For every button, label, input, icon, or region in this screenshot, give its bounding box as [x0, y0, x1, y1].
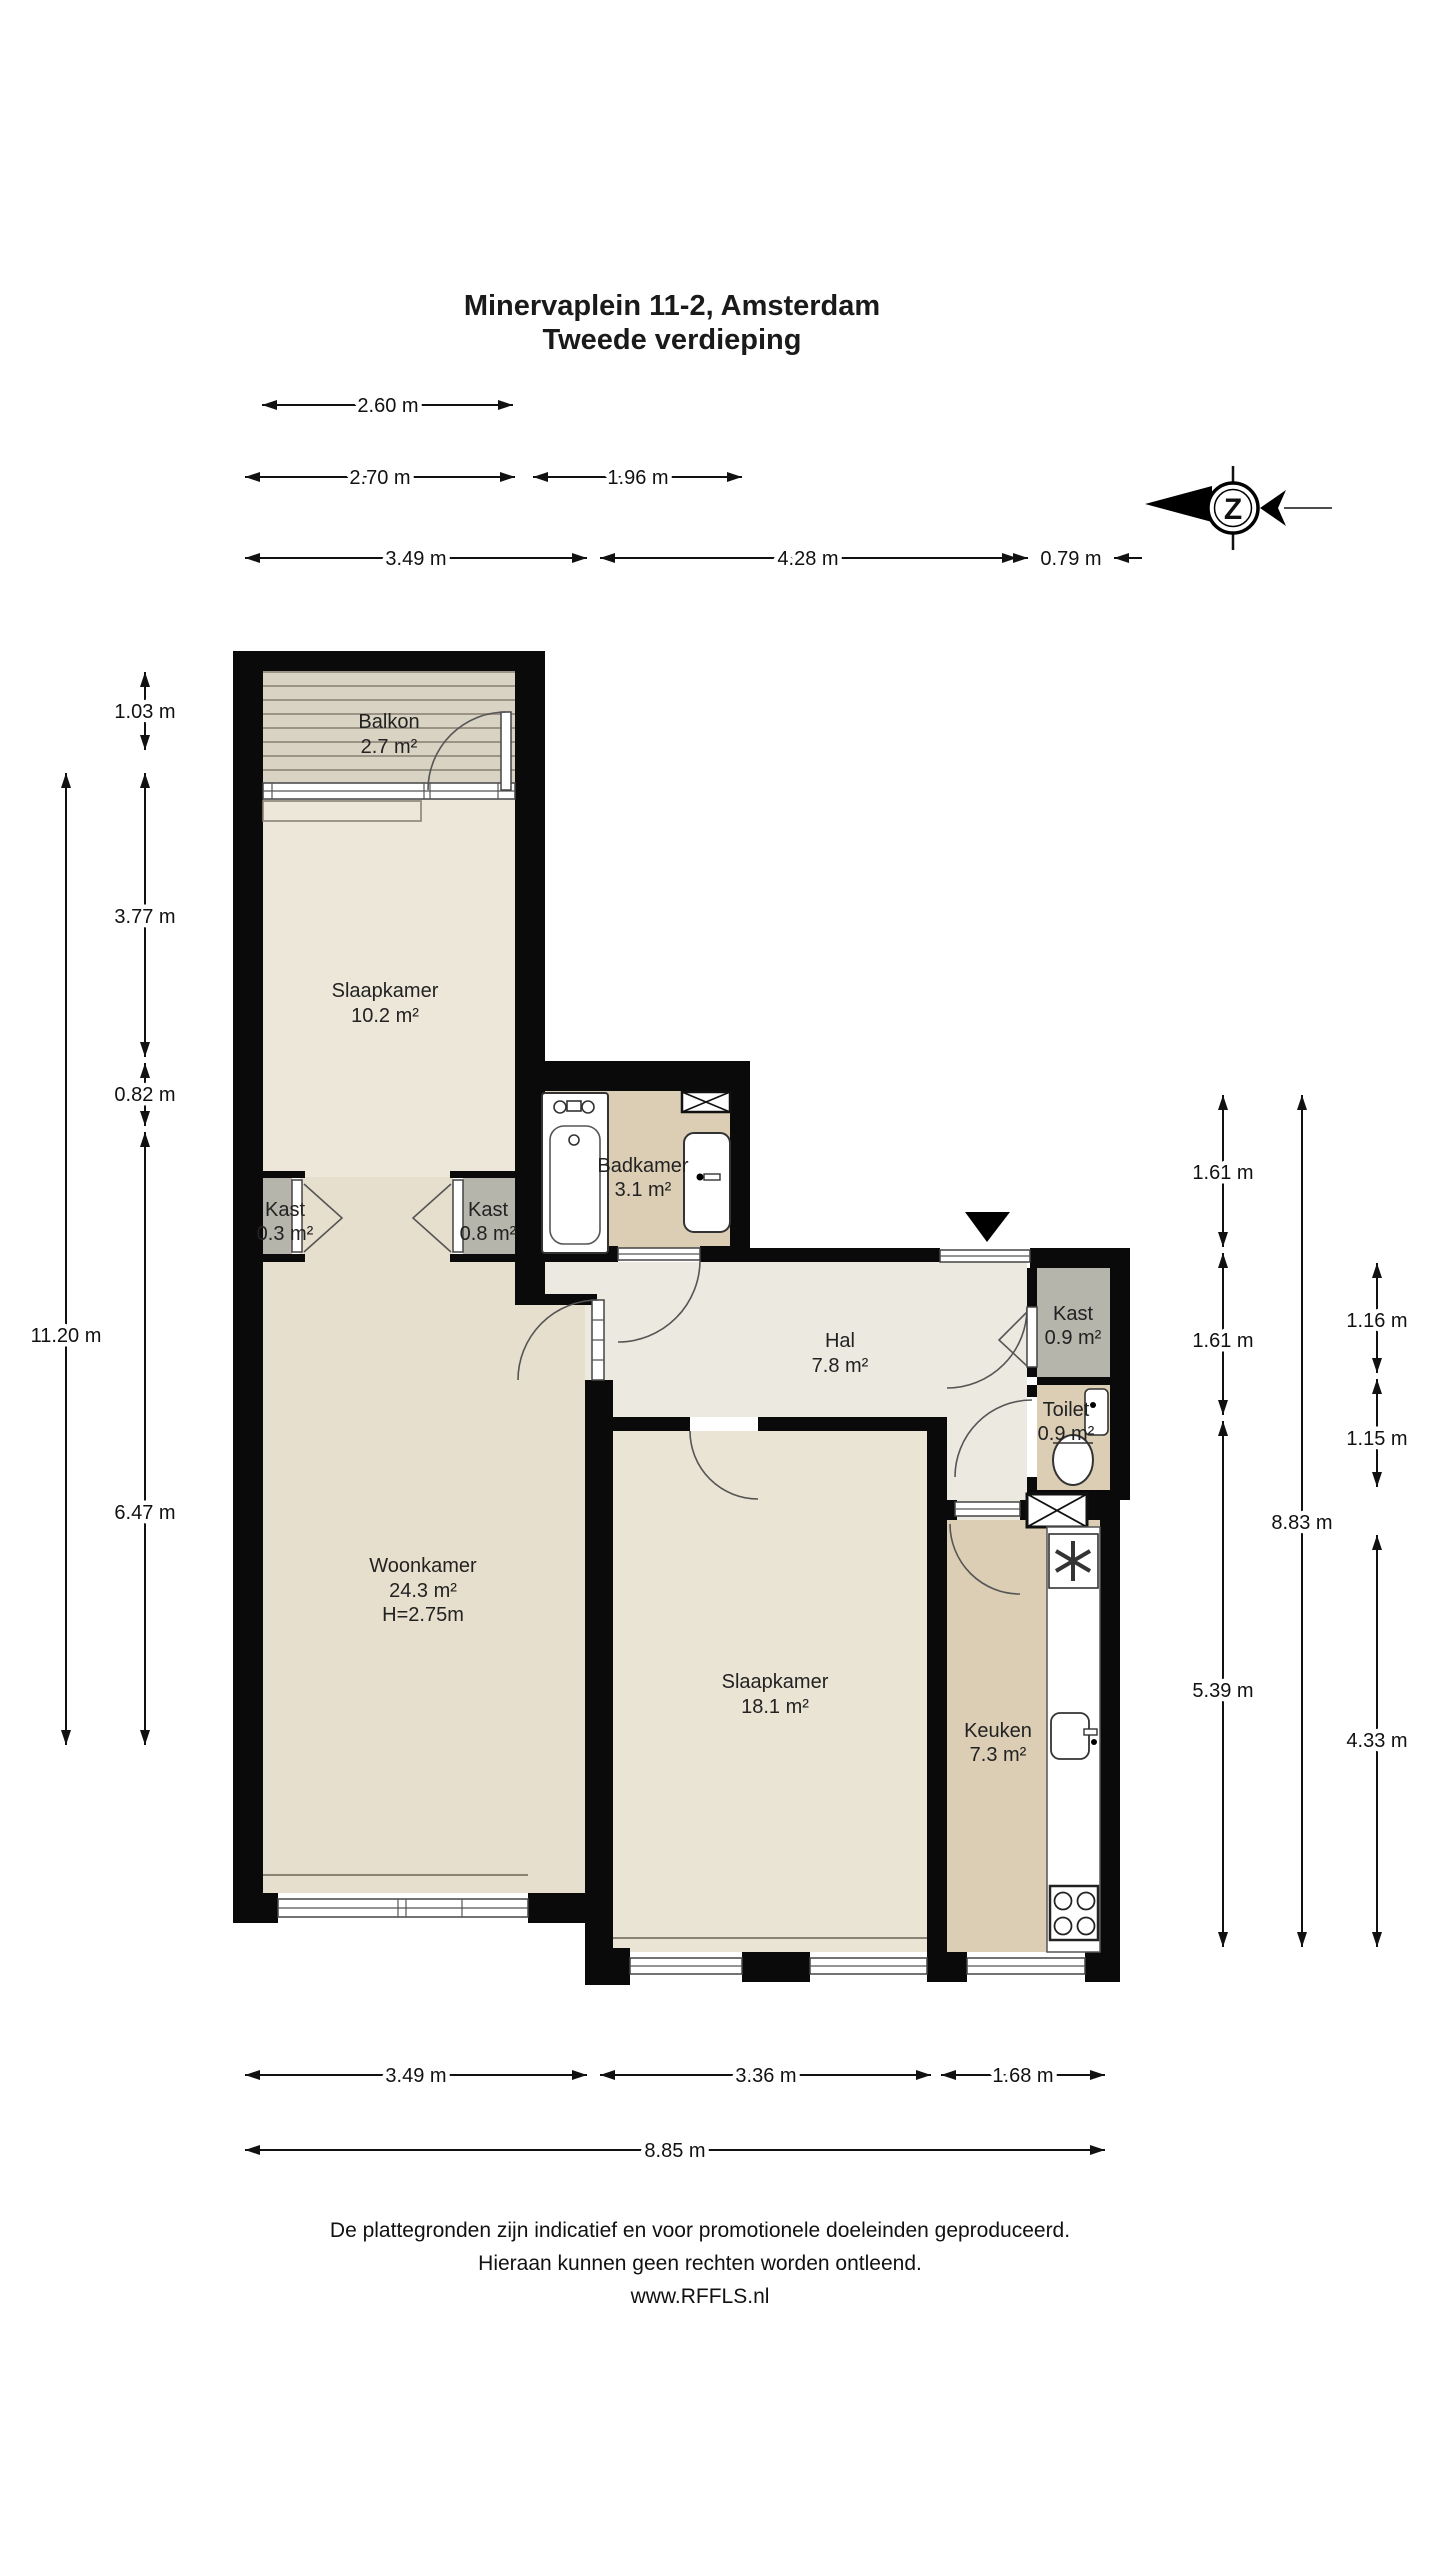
dim-bottom-keuken: 1.68 m: [992, 2065, 1053, 2087]
keuken-sink-tap: [1084, 1729, 1097, 1735]
toilet-label: Toilet: [1043, 1399, 1090, 1421]
slaapkamer1-area: 10.2 m²: [351, 1005, 419, 1027]
dim-kast3-height: 1.16 m: [1346, 1310, 1407, 1332]
dim-balkon-width: 2.60 m: [357, 395, 418, 417]
footer-line2: Hieraan kunnen geen rechten worden ontle…: [478, 2252, 922, 2275]
badkamer-area: 3.1 m²: [615, 1179, 672, 1201]
dim-hal-height: 1.61 m: [1192, 1330, 1253, 1352]
hal-area: 7.8 m²: [812, 1355, 869, 1377]
dim-slaapkamer2-height: 5.39 m: [1192, 1680, 1253, 1702]
slaapkamer2-area: 18.1 m²: [741, 1696, 809, 1718]
hal-label: Hal: [825, 1330, 855, 1352]
dim-woonkamer-depth: 6.47 m: [114, 1502, 175, 1524]
footer-disclaimer: De plattegronden zijn indicatief en voor…: [330, 2219, 1070, 2308]
dim-right-total: 8.83 m: [1271, 1512, 1332, 1534]
floorplan-canvas: Minervaplein 11-2, Amsterdam Tweede verd…: [0, 0, 1440, 2560]
woonkamer-ceiling-height: H=2.75m: [382, 1604, 464, 1626]
title-line1: Minervaplein 11-2, Amsterdam: [464, 290, 880, 322]
title-line2: Tweede verdieping: [543, 324, 802, 356]
dimensions-right: 1.61 m 1.61 m 5.39 m 8.83 m 1.16 m 1.15 …: [1192, 1095, 1407, 1947]
dimensions-left: 1.03 m 3.77 m 0.82 m 6.47 m 11.20 m: [31, 672, 176, 1745]
dim-left-total: 11.20 m: [31, 1325, 102, 1347]
dim-badkamer-height: 1.61 m: [1192, 1162, 1253, 1184]
toilet-area: 0.9 m²: [1038, 1423, 1095, 1445]
dim-slaapkamer1-width: 2.70 m: [349, 467, 410, 489]
washbasin-tap: [704, 1174, 720, 1180]
dim-balkon-depth: 1.03 m: [114, 701, 175, 723]
toilet-cistern-button: [1090, 1402, 1096, 1408]
keuken-label: Keuken: [964, 1720, 1032, 1742]
compass-north-indicator: Z: [1145, 466, 1332, 550]
dimensions-top: 2.60 m 2.70 m 1.96 m 3.49 m 4.28 m 0.79 …: [245, 395, 1142, 570]
kast2-label: Kast: [468, 1199, 508, 1221]
entrance-arrow-icon: [965, 1212, 1010, 1242]
badkamer-washbasin: [684, 1133, 730, 1232]
page-title: Minervaplein 11-2, Amsterdam Tweede verd…: [464, 290, 880, 356]
slaapkamer2-label: Slaapkamer: [722, 1671, 829, 1693]
footer-website: www.RFFLS.nl: [630, 2285, 770, 2308]
dimensions-bottom: 3.49 m 3.36 m 1.68 m 8.85 m: [245, 2065, 1105, 2162]
passage-floor: [300, 1177, 453, 1265]
kast3-label: Kast: [1053, 1303, 1093, 1325]
dim-bottom-woonkamer: 3.49 m: [385, 2065, 446, 2087]
kast2-area: 0.8 m²: [460, 1223, 517, 1245]
keuken-sink-tap-dot: [1091, 1739, 1097, 1745]
woonkamer-label: Woonkamer: [369, 1555, 477, 1577]
hal-floor: [545, 1262, 1027, 1417]
dim-bottom-total: 8.85 m: [644, 2140, 705, 2162]
compass-letter: Z: [1224, 493, 1242, 526]
dim-toilet-height: 1.15 m: [1346, 1428, 1407, 1450]
keuken-area: 7.3 m²: [970, 1744, 1027, 1766]
keuken-sink: [1051, 1713, 1089, 1759]
kast3-area: 0.9 m²: [1045, 1327, 1102, 1349]
washbasin-tap-dot: [697, 1174, 704, 1181]
dim-bottom-slaapkamer: 3.36 m: [735, 2065, 796, 2087]
footer-line1: De plattegronden zijn indicatief en voor…: [330, 2219, 1070, 2242]
compass-wing-icon: [1145, 486, 1212, 522]
kast3-door-leaf: [1027, 1307, 1037, 1367]
badkamer-label: Badkamer: [597, 1155, 688, 1177]
dim-top-right: 0.79 m: [1040, 548, 1101, 570]
dim-slaapkamer1-depth: 3.77 m: [114, 906, 175, 928]
woonkamer-area: 24.3 m²: [389, 1580, 457, 1602]
balkon-area: 2.7 m²: [361, 736, 418, 758]
kast1-label: Kast: [265, 1199, 305, 1221]
dim-top-left: 3.49 m: [385, 548, 446, 570]
dim-badkamer-width: 1.96 m: [607, 467, 668, 489]
compass-dart-icon: [1260, 490, 1286, 526]
balkon-door-leaf: [501, 712, 511, 790]
dim-kast-depth: 0.82 m: [114, 1084, 175, 1106]
dim-top-mid: 4.28 m: [777, 548, 838, 570]
slaapkamer1-label: Slaapkamer: [332, 980, 439, 1002]
kast1-area: 0.3 m²: [257, 1223, 314, 1245]
dim-keuken-height: 4.33 m: [1346, 1730, 1407, 1752]
woonkamer-floor: [263, 1262, 585, 1893]
balkon-label: Balkon: [358, 711, 419, 733]
